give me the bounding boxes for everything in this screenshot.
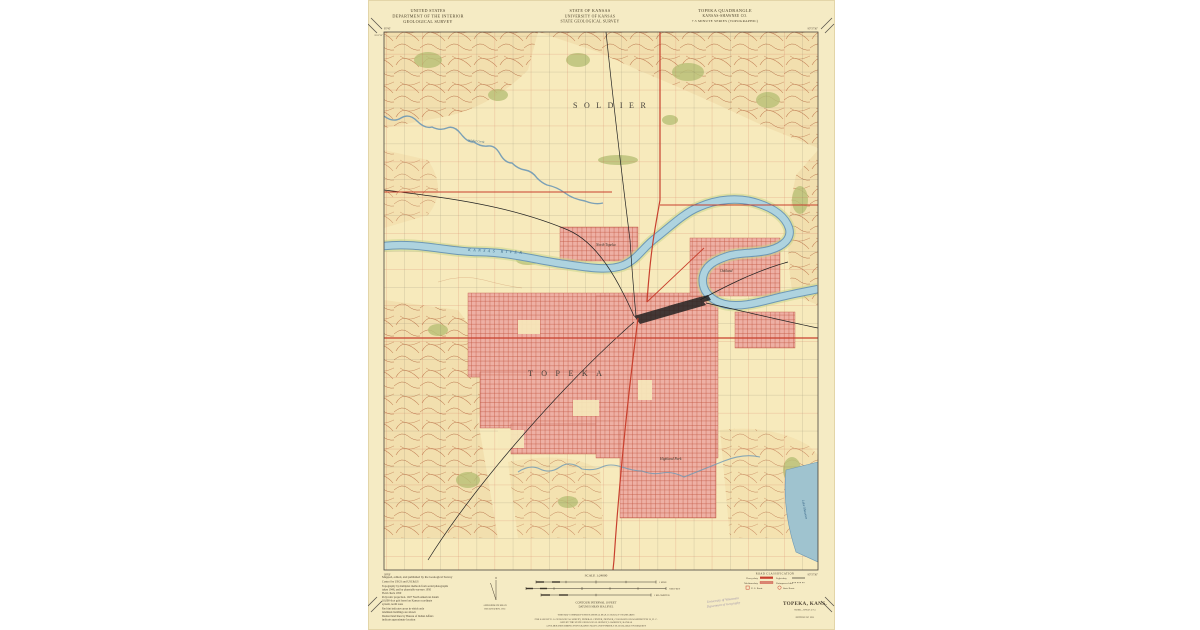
- sheet-code: N3900—W9537.5/7.5: [794, 609, 816, 612]
- declination-caption-1: APPROXIMATE MEAN: [483, 604, 507, 607]
- topo-map-svg: SOLDIER TOPEKA KANSAS RIVER Soldier Cree…: [368, 0, 835, 630]
- header-right-line3: 7.5 MINUTE SERIES (TOPOGRAPHIC): [692, 19, 759, 23]
- sheet-edition: EDITION OF 1951: [796, 616, 816, 619]
- road-light-label: Light-duty: [776, 577, 787, 580]
- road-heavy-symbol: [760, 577, 773, 579]
- map-body: SOLDIER TOPEKA KANSAS RIVER Soldier Cree…: [384, 32, 818, 570]
- declination-caption-2: DECLINATION, 1951: [484, 608, 506, 611]
- label-city: TOPEKA: [528, 369, 610, 378]
- road-medium-symbol: [760, 581, 773, 583]
- scale-bar-label-mile: 1 MILE: [659, 581, 667, 584]
- sale-line: A FOLDER DESCRIBING TOPOGRAPHIC MAPS AND…: [546, 624, 647, 627]
- coord-nw-lon: 95°45': [384, 28, 391, 31]
- map-sheet: SOLDIER TOPEKA KANSAS RIVER Soldier Cree…: [368, 0, 835, 630]
- header-left-line3: GEOLOGICAL SURVEY: [403, 19, 452, 24]
- header-left-line1: UNITED STATES: [410, 8, 445, 13]
- scale-bar-label-feet: 7000 FEET: [669, 588, 681, 591]
- us-route-label: U. S. Route: [751, 587, 764, 590]
- road-heavy-label: Heavy-duty: [746, 577, 759, 580]
- coord-ne-lon: 95°37'30": [808, 28, 818, 31]
- header-left-line2: DEPARTMENT OF THE INTERIOR: [392, 14, 463, 19]
- header-right-line2: KANSAS-SHAWNEE CO.: [702, 14, 747, 18]
- header-center-line1: STATE OF KANSAS: [570, 8, 611, 13]
- road-class-title: ROAD CLASSIFICATION: [756, 573, 795, 576]
- header-center-line2: UNIVERSITY OF KANSAS: [565, 15, 616, 19]
- credit-line: system, north zone: [382, 603, 404, 606]
- datum-note: DATUM IS MEAN SEA LEVEL: [579, 606, 614, 609]
- coord-nw-lat: 39°07'30": [374, 34, 383, 37]
- credit-line: indicate approximate location: [382, 619, 416, 622]
- scale-bar-label-km: 1 KILOMETER: [654, 594, 670, 597]
- contour-interval: CONTOUR INTERVAL 10 FEET: [575, 601, 616, 605]
- scale-title: SCALE 1:24000: [585, 574, 608, 578]
- label-highland-park: Highland Park: [659, 457, 682, 461]
- credit-line: Field check 1950: [382, 592, 402, 595]
- sheet-title: TOPEKA, KANS.: [783, 601, 827, 607]
- label-oakland: Oakland: [720, 269, 733, 273]
- state-route-label: State Route: [783, 587, 795, 590]
- header-center-line3: STATE GEOLOGICAL SURVEY: [560, 20, 619, 24]
- label-north-topeka: North Topeka: [595, 243, 616, 247]
- road-unimproved-label: Unimproved dirt: [776, 582, 793, 585]
- page: SOLDIER TOPEKA KANSAS RIVER Soldier Cree…: [0, 0, 1200, 630]
- label-township: SOLDIER: [573, 101, 652, 110]
- coord-se-lon: 95°37'30": [808, 574, 818, 577]
- credit-line: landmark buildings are shown: [382, 611, 416, 614]
- road-medium-label: Medium-duty: [744, 582, 758, 585]
- credit-line: Control by USGS and USC&GS: [382, 581, 419, 584]
- header-right-line1: TOPEKA QUADRANGLE: [698, 8, 752, 13]
- accuracy-note: THIS MAP COMPLIES WITH NATIONAL MAP ACCU…: [558, 614, 636, 617]
